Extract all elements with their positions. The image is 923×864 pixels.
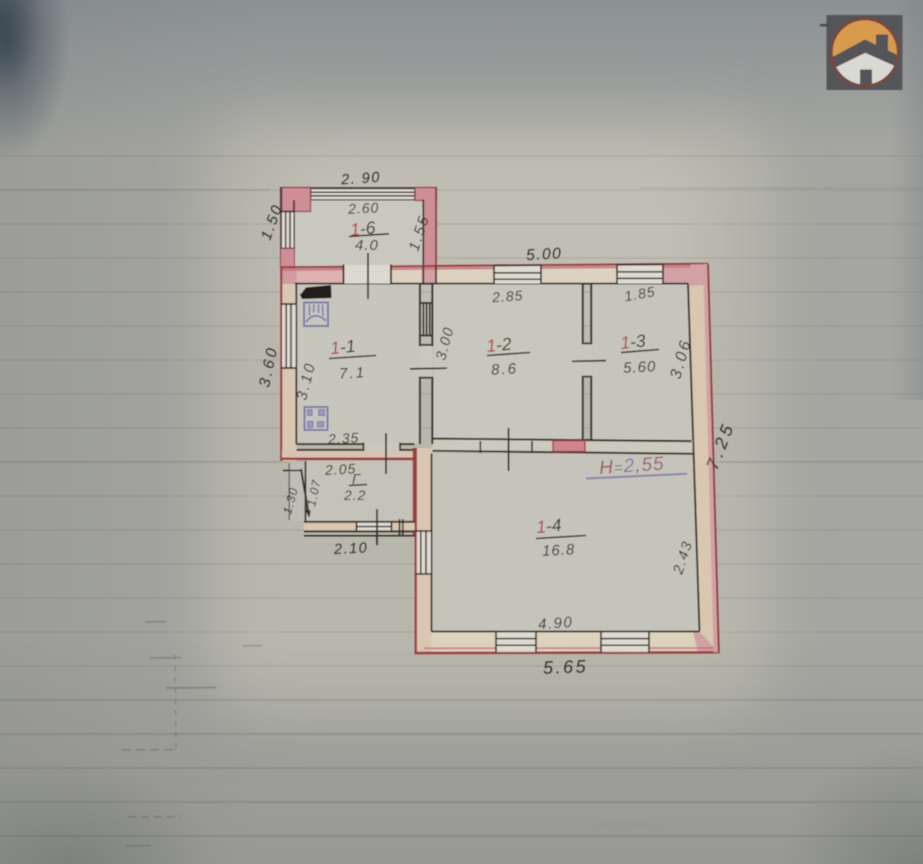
svg-text:1-1: 1-1 bbox=[329, 336, 356, 359]
svg-text:1-3: 1-3 bbox=[619, 330, 647, 353]
svg-text:Г: Г bbox=[352, 472, 361, 488]
svg-text:1.85: 1.85 bbox=[623, 283, 657, 304]
svg-text:1.30: 1.30 bbox=[280, 486, 301, 516]
svg-text:16.8: 16.8 bbox=[542, 541, 576, 560]
svg-text:7.25: 7.25 bbox=[702, 419, 739, 473]
svg-text:1-4: 1-4 bbox=[535, 515, 563, 538]
svg-text:1.55: 1.55 bbox=[406, 213, 434, 254]
svg-text:5.00: 5.00 bbox=[526, 245, 563, 264]
svg-text:2.43: 2.43 bbox=[670, 539, 696, 577]
svg-text:H=2,55: H=2,55 bbox=[598, 453, 665, 479]
svg-text:1.07: 1.07 bbox=[304, 478, 323, 508]
svg-text:2.2: 2.2 bbox=[343, 487, 366, 503]
svg-text:2.05: 2.05 bbox=[324, 460, 357, 478]
svg-text:4.90: 4.90 bbox=[538, 614, 574, 633]
svg-text:2.35: 2.35 bbox=[327, 429, 360, 447]
svg-text:5.65: 5.65 bbox=[543, 656, 589, 678]
svg-text:5.60: 5.60 bbox=[623, 358, 657, 377]
svg-text:1.50: 1.50 bbox=[258, 202, 287, 243]
svg-text:ti lut tul il ti l: ti lut tul il ti l bbox=[25, 0, 36, 7]
svg-text:2.85: 2.85 bbox=[491, 287, 524, 305]
svg-text:3.00: 3.00 bbox=[433, 325, 457, 362]
svg-text:1-6: 1-6 bbox=[349, 217, 377, 240]
svg-text:4.0: 4.0 bbox=[355, 237, 379, 254]
svg-text:1-2: 1-2 bbox=[485, 334, 513, 357]
svg-text:2.60: 2.60 bbox=[347, 199, 380, 217]
svg-text:3.06: 3.06 bbox=[668, 337, 696, 381]
svg-text:3.60: 3.60 bbox=[256, 344, 281, 389]
svg-text:8.6: 8.6 bbox=[491, 360, 519, 378]
svg-text:7.1: 7.1 bbox=[339, 364, 367, 382]
svg-text:~ -- ~~- -: ~ -- ~~- - bbox=[600, 820, 659, 831]
svg-text:2.10: 2.10 bbox=[333, 540, 369, 558]
svg-text:2. 90: 2. 90 bbox=[340, 170, 382, 189]
svg-text:3.10: 3.10 bbox=[293, 360, 319, 402]
